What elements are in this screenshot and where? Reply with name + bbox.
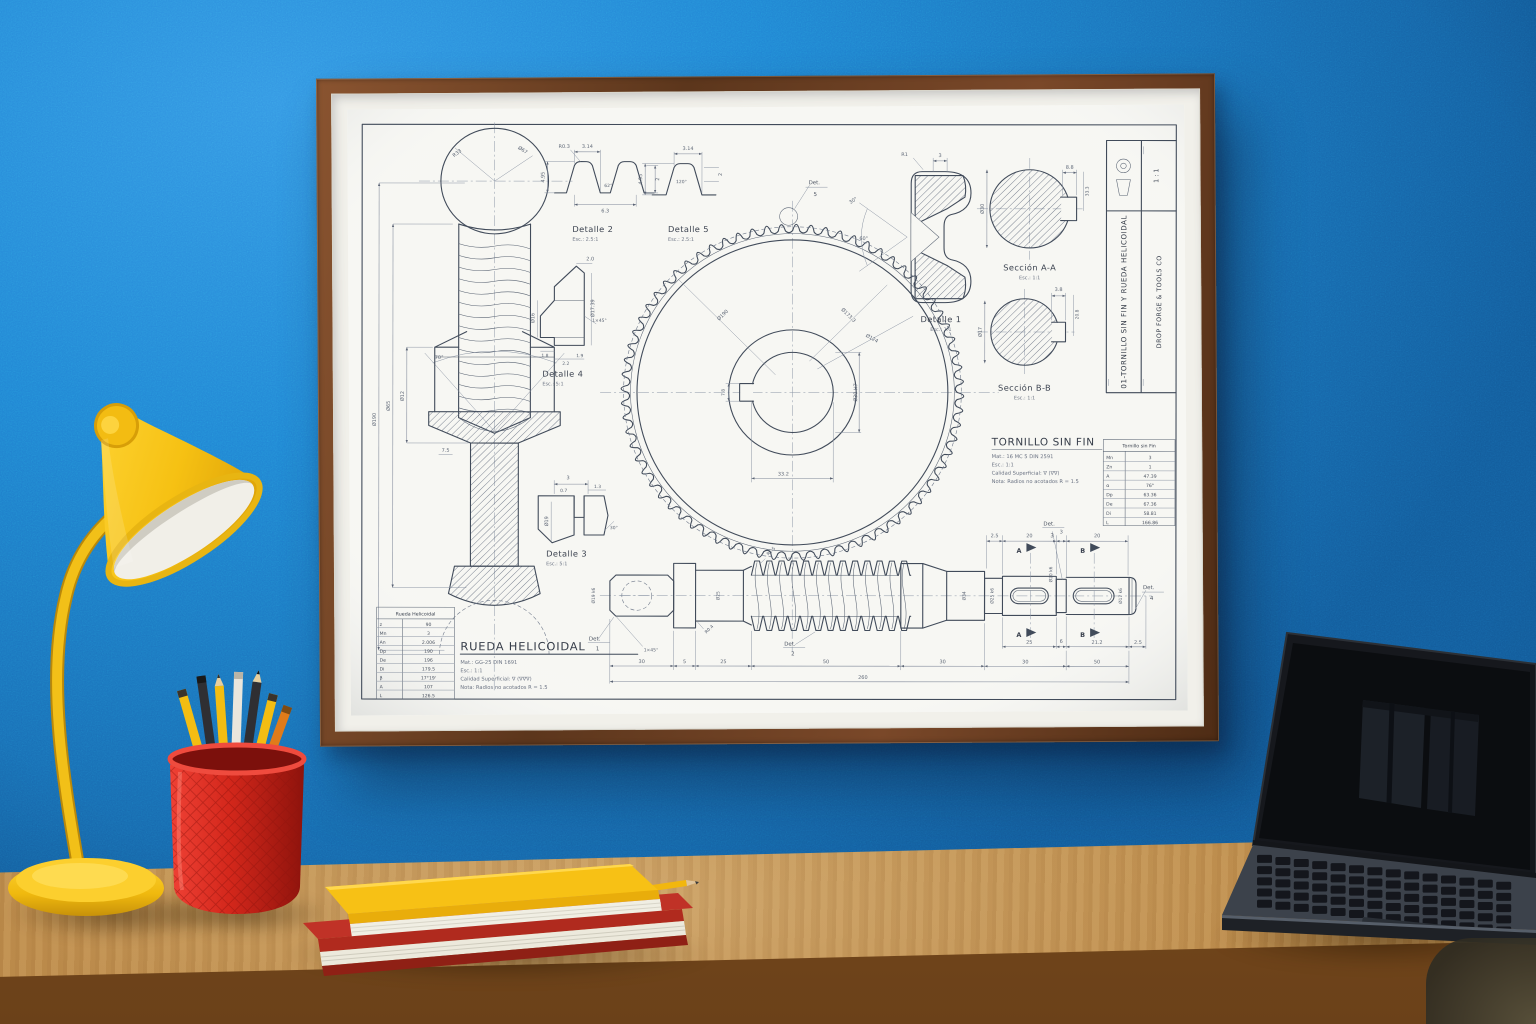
svg-text:1 : 1: 1 : 1 bbox=[1152, 169, 1160, 183]
svg-text:1×45°: 1×45° bbox=[592, 318, 607, 324]
svg-text:2.5: 2.5 bbox=[1134, 640, 1142, 646]
svg-text:3: 3 bbox=[567, 475, 570, 481]
svg-text:166.86: 166.86 bbox=[1142, 520, 1158, 526]
svg-text:62°: 62° bbox=[604, 183, 612, 189]
svg-text:4.95: 4.95 bbox=[638, 174, 644, 185]
svg-text:Tornillo sin Fin: Tornillo sin Fin bbox=[1121, 443, 1155, 449]
svg-text:70°: 70° bbox=[435, 355, 444, 361]
svg-text:An: An bbox=[380, 640, 386, 646]
svg-text:2.0: 2.0 bbox=[586, 256, 594, 262]
svg-text:Det.: Det. bbox=[1043, 522, 1055, 528]
svg-text:Detalle 1: Detalle 1 bbox=[921, 314, 962, 324]
svg-text:90: 90 bbox=[426, 622, 432, 628]
svg-text:Calidad Superficial: ∇ (∇∇∇): Calidad Superficial: ∇ (∇∇∇) bbox=[460, 677, 531, 683]
svg-text:5: 5 bbox=[683, 659, 686, 665]
blueprint-drawing: R33 Ø67 70° bbox=[347, 104, 1188, 715]
svg-text:Detalle 3: Detalle 3 bbox=[546, 549, 587, 559]
svg-text:Detalle 4: Detalle 4 bbox=[542, 369, 583, 379]
svg-text:33.2: 33.2 bbox=[778, 472, 789, 478]
svg-text:0.7: 0.7 bbox=[560, 488, 567, 494]
svg-text:3: 3 bbox=[1060, 529, 1063, 535]
svg-text:Ø25: Ø25 bbox=[714, 591, 721, 600]
lamp-shade bbox=[31, 360, 274, 603]
svg-text:30: 30 bbox=[1022, 659, 1028, 665]
svg-text:1×45°: 1×45° bbox=[644, 647, 659, 653]
svg-text:30: 30 bbox=[939, 659, 945, 665]
svg-text:1: 1 bbox=[596, 646, 599, 652]
svg-text:2.2: 2.2 bbox=[562, 361, 569, 367]
svg-text:20: 20 bbox=[1094, 533, 1100, 539]
svg-text:Ø19: Ø19 bbox=[543, 516, 550, 526]
svg-text:Esc.: 1:1: Esc.: 1:1 bbox=[930, 327, 951, 333]
svg-text:3: 3 bbox=[427, 631, 430, 637]
svg-text:30: 30 bbox=[639, 659, 645, 665]
svg-text:Esc.: 2.5:1: Esc.: 2.5:1 bbox=[668, 237, 694, 243]
svg-text:126.5: 126.5 bbox=[422, 693, 435, 699]
svg-text:Det.: Det. bbox=[589, 637, 601, 643]
svg-text:25: 25 bbox=[1026, 640, 1032, 646]
svg-text:Sección A-A: Sección A-A bbox=[1003, 262, 1056, 272]
svg-text:Ø34: Ø34 bbox=[961, 591, 968, 600]
svg-text:2.006: 2.006 bbox=[422, 640, 435, 646]
svg-text:Esc.: 2.5:1: Esc.: 2.5:1 bbox=[572, 237, 598, 243]
svg-text:196: 196 bbox=[424, 658, 433, 664]
svg-text:5: 5 bbox=[814, 192, 817, 198]
svg-text:Mn: Mn bbox=[380, 631, 387, 637]
svg-text:17°19': 17°19' bbox=[421, 675, 436, 681]
svg-text:50: 50 bbox=[1094, 659, 1100, 665]
svg-text:A: A bbox=[1016, 547, 1021, 555]
svg-text:20.8: 20.8 bbox=[1074, 309, 1080, 319]
svg-text:120°: 120° bbox=[676, 179, 687, 185]
laptop bbox=[1213, 612, 1536, 957]
svg-text:3.14: 3.14 bbox=[683, 146, 694, 152]
svg-text:Dp: Dp bbox=[1106, 492, 1113, 498]
svg-text:3: 3 bbox=[1149, 455, 1152, 461]
svg-text:1.8: 1.8 bbox=[541, 353, 548, 359]
frame-mat: R33 Ø67 70° bbox=[331, 88, 1204, 731]
svg-text:Esc.: 1:1: Esc.: 1:1 bbox=[460, 668, 482, 674]
svg-text:2: 2 bbox=[655, 178, 661, 181]
svg-text:Detalle 5: Detalle 5 bbox=[668, 224, 709, 234]
svg-text:Detalle 2: Detalle 2 bbox=[572, 224, 613, 234]
svg-text:30°: 30° bbox=[610, 525, 618, 531]
svg-text:Det.: Det. bbox=[1143, 585, 1155, 591]
svg-text:R1: R1 bbox=[901, 152, 908, 158]
svg-text:50: 50 bbox=[823, 659, 829, 665]
chair-corner bbox=[1426, 938, 1536, 1024]
svg-text:TORNILLO SIN FIN: TORNILLO SIN FIN bbox=[991, 436, 1095, 448]
svg-text:Ø12: Ø12 bbox=[399, 391, 406, 401]
svg-text:Mn: Mn bbox=[1106, 455, 1113, 461]
svg-text:7.5: 7.5 bbox=[442, 448, 450, 454]
svg-text:B: B bbox=[1080, 631, 1085, 639]
svg-text:8.8: 8.8 bbox=[1066, 165, 1074, 171]
svg-text:Dp: Dp bbox=[380, 649, 387, 655]
svg-text:63.36: 63.36 bbox=[1143, 492, 1156, 498]
screen-reflection bbox=[1359, 700, 1479, 816]
svg-text:α: α bbox=[1106, 484, 1109, 489]
svg-text:Ø17.39: Ø17.39 bbox=[589, 299, 596, 317]
svg-text:3: 3 bbox=[1050, 533, 1053, 539]
svg-text:190: 190 bbox=[424, 649, 433, 655]
svg-text:25: 25 bbox=[720, 659, 726, 665]
svg-text:2.5: 2.5 bbox=[991, 533, 999, 539]
svg-text:Rueda Helicoidal: Rueda Helicoidal bbox=[396, 612, 436, 618]
svg-text:1.9: 1.9 bbox=[576, 353, 583, 359]
svg-text:Ø25 k6: Ø25 k6 bbox=[988, 588, 995, 604]
svg-text:179.5: 179.5 bbox=[422, 667, 435, 673]
svg-text:Ø17 k6: Ø17 k6 bbox=[1117, 588, 1124, 604]
svg-text:2: 2 bbox=[791, 651, 794, 657]
desk-scene: R33 Ø67 70° bbox=[0, 0, 1536, 1024]
svg-text:Det.: Det. bbox=[784, 642, 796, 648]
svg-text:3.8: 3.8 bbox=[1055, 287, 1063, 293]
svg-text:A: A bbox=[1016, 631, 1021, 639]
svg-text:Mat.: GG-25 DIN 1691: Mat.: GG-25 DIN 1691 bbox=[460, 660, 517, 666]
lamp-base bbox=[8, 858, 164, 916]
svg-text:2: 2 bbox=[718, 173, 724, 176]
svg-text:260: 260 bbox=[858, 675, 868, 681]
notebooks bbox=[278, 833, 708, 1003]
svg-text:Di: Di bbox=[380, 667, 385, 673]
svg-text:De: De bbox=[380, 658, 387, 664]
svg-text:Esc.: 5:1: Esc.: 5:1 bbox=[546, 561, 567, 567]
svg-text:Nota: Radios no acotados R = 1: Nota: Radios no acotados R = 1.5 bbox=[992, 479, 1079, 485]
svg-text:20: 20 bbox=[1026, 533, 1032, 539]
svg-text:Sección B-B: Sección B-B bbox=[998, 383, 1051, 393]
svg-text:Ø30: Ø30 bbox=[979, 204, 986, 214]
svg-text:Esc.: 1:1: Esc.: 1:1 bbox=[992, 462, 1014, 468]
svg-text:4.95: 4.95 bbox=[540, 172, 546, 183]
svg-text:47.39: 47.39 bbox=[1144, 474, 1157, 480]
svg-text:Det.: Det. bbox=[809, 180, 821, 186]
svg-text:4: 4 bbox=[1150, 596, 1154, 602]
svg-text:Ø17: Ø17 bbox=[977, 327, 984, 337]
svg-text:B: B bbox=[1080, 547, 1085, 555]
svg-text:Calidad Superficial: ∇ (∇∇): Calidad Superficial: ∇ (∇∇) bbox=[992, 471, 1060, 477]
svg-text:Ø20 k6: Ø20 k6 bbox=[1047, 566, 1054, 582]
svg-text:Esc.: 1:1: Esc.: 1:1 bbox=[1014, 395, 1035, 401]
svg-text:1.3: 1.3 bbox=[594, 484, 601, 490]
svg-text:Di: Di bbox=[1106, 511, 1111, 517]
svg-text:1: 1 bbox=[1149, 464, 1152, 470]
svg-text:Mat.: 16 MC 5 DIN 2591: Mat.: 16 MC 5 DIN 2591 bbox=[992, 454, 1054, 460]
svg-text:Ø190: Ø190 bbox=[371, 413, 378, 426]
svg-text:33.3: 33.3 bbox=[1085, 186, 1091, 196]
svg-text:Esc.: 1:1: Esc.: 1:1 bbox=[1019, 275, 1040, 281]
laptop-screen bbox=[1253, 633, 1536, 878]
svg-text:76°: 76° bbox=[1146, 483, 1154, 489]
svg-text:7.8: 7.8 bbox=[721, 389, 727, 396]
svg-text:67.36: 67.36 bbox=[1143, 502, 1156, 508]
svg-text:21.2: 21.2 bbox=[1092, 640, 1103, 646]
svg-text:Ø16: Ø16 bbox=[529, 313, 536, 323]
svg-text:RUEDA HELICOIDAL: RUEDA HELICOIDAL bbox=[460, 639, 585, 653]
svg-text:Esc.: 5:1: Esc.: 5:1 bbox=[542, 381, 563, 387]
svg-text:De: De bbox=[1106, 502, 1113, 508]
svg-text:6: 6 bbox=[1060, 639, 1063, 645]
svg-text:6.3: 6.3 bbox=[601, 208, 609, 214]
picture-frame: R33 Ø67 70° bbox=[316, 73, 1219, 746]
svg-text:58.81: 58.81 bbox=[1143, 511, 1156, 517]
svg-text:Nota: Radios no acotados R = 1: Nota: Radios no acotados R = 1.5 bbox=[460, 685, 547, 691]
svg-text:DROP FORGE & TOOLS CO: DROP FORGE & TOOLS CO bbox=[1156, 255, 1163, 348]
svg-text:01-TORNILLO SIN FIN Y RUEDA HE: 01-TORNILLO SIN FIN Y RUEDA HELICOIDAL bbox=[1119, 215, 1128, 389]
svg-text:3: 3 bbox=[939, 153, 942, 159]
svg-text:Ø19 k6: Ø19 k6 bbox=[590, 588, 597, 604]
svg-text:β: β bbox=[380, 675, 383, 681]
svg-text:107: 107 bbox=[424, 684, 433, 690]
svg-text:R0.3: R0.3 bbox=[559, 144, 570, 150]
svg-text:Ø65: Ø65 bbox=[385, 401, 392, 411]
svg-text:3.14: 3.14 bbox=[582, 144, 593, 150]
svg-text:Ø30 H7: Ø30 H7 bbox=[852, 383, 859, 401]
svg-text:Zn: Zn bbox=[1106, 464, 1112, 470]
svg-text:60°: 60° bbox=[859, 236, 868, 242]
